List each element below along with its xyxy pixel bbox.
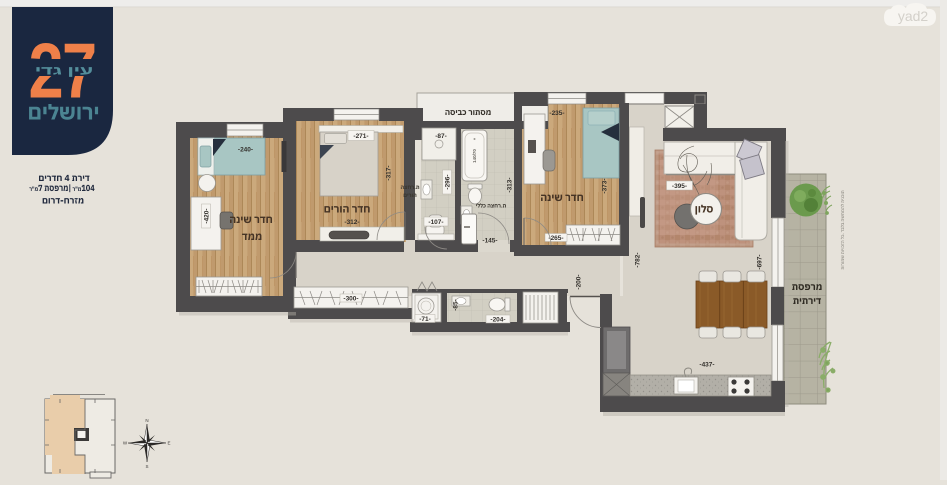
svg-text:-271-: -271-: [353, 133, 368, 140]
svg-text:-313-: -313-: [506, 177, 513, 192]
svg-text:-145-: -145-: [482, 237, 497, 244]
svg-text:-420-: -420-: [203, 208, 210, 223]
svg-text:-395-: -395-: [672, 183, 687, 190]
svg-text:S: S: [145, 464, 148, 469]
svg-text:-87-: -87-: [435, 133, 447, 140]
svg-text:-240-: -240-: [238, 146, 253, 153]
svg-text:-107-: -107-: [428, 219, 443, 226]
svg-text:-782-: -782-: [634, 252, 641, 267]
svg-text:-235-: -235-: [549, 110, 564, 117]
svg-text:E: E: [167, 441, 170, 446]
svg-text:-71-: -71-: [419, 316, 431, 323]
svg-text:-317-: -317-: [385, 165, 392, 180]
svg-text:-200-: -200-: [575, 274, 582, 289]
svg-text:-204-: -204-: [490, 316, 505, 323]
svg-text:yad2: yad2: [898, 8, 929, 24]
svg-text:-437-: -437-: [699, 361, 714, 368]
svg-text:-85-: -85-: [452, 299, 459, 311]
svg-text:140/70: 140/70: [472, 149, 477, 163]
svg-text:-296-: -296-: [444, 174, 451, 189]
svg-text:-300-: -300-: [343, 295, 358, 302]
svg-text:-697-: -697-: [756, 254, 763, 269]
svg-text:-373-: -373-: [601, 178, 608, 193]
svg-text:-312-: -312-: [344, 219, 359, 226]
svg-text:N: N: [145, 418, 148, 423]
